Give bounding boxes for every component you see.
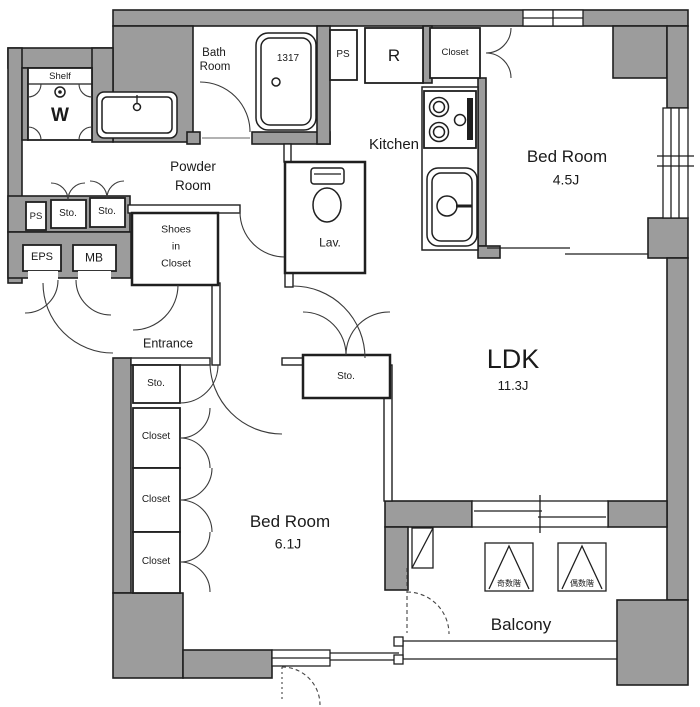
storage-col-door-arc (180, 365, 218, 403)
balcony-partition-panel (412, 528, 433, 568)
closet-col1-label: Closet (142, 432, 170, 443)
refrigerator-label: R (388, 47, 400, 65)
sliding-window-bedroom2-right (330, 653, 399, 660)
storage-mid-doors-arc (303, 312, 390, 355)
balcony-partition-swing-arc (407, 592, 449, 634)
bedroom1-name-label: Bed Room (527, 148, 607, 166)
toilet (311, 168, 344, 222)
window-bedroom2-balcony (272, 650, 330, 666)
washer-label: W (51, 106, 69, 126)
bath-room-label-2: Room (200, 61, 231, 73)
mb-door-arc (76, 280, 111, 315)
bedroom2-size-label: 6.1J (275, 537, 301, 552)
closet-col3-label: Closet (142, 557, 170, 568)
bedroom2-door-arc (210, 362, 282, 434)
storage-small1-label: Sto. (59, 209, 77, 220)
hatch-even-label: 偶数階 (570, 580, 594, 588)
shelf-label: Shelf (49, 72, 71, 82)
storage-mid-label: Sto. (337, 372, 355, 383)
floor-plan-drawing (0, 0, 700, 707)
balcony-label: Balcony (491, 616, 551, 634)
closet-col2-doors-arc (180, 468, 212, 532)
ldk-size-label: 11.3J (498, 379, 529, 393)
floor-plan: Shelf W Bath Room 1317 PS R Closet Bed R… (0, 0, 700, 707)
closet-top-label: Closet (442, 48, 469, 58)
kitchen-sink (427, 168, 477, 246)
pipe-space-top-label: PS (336, 50, 349, 61)
closet-col1-doors-arc (180, 408, 210, 468)
powder-room-label-2: Room (175, 179, 211, 193)
bathtub-size-label: 1317 (277, 54, 299, 65)
mb-door-gap (78, 271, 111, 280)
meter-box-label: MB (85, 252, 103, 265)
bedroom1-size-label: 4.5J (553, 173, 579, 188)
closet-col2-label: Closet (142, 495, 170, 506)
bath-room-label-1: Bath (202, 47, 226, 59)
closet-col3-doors-arc (180, 532, 210, 592)
shoes-closet-label-3: Closet (161, 258, 191, 269)
bedroom2-window-swing-arc (282, 667, 320, 705)
shoes-closet-door-arc (133, 285, 178, 330)
hatch-odd-label: 奇数階 (497, 580, 521, 588)
shoes-closet-label-2: in (172, 241, 180, 252)
entrance-label: Entrance (143, 337, 193, 350)
balcony-railing (403, 641, 617, 659)
window-bedroom1-right (657, 108, 694, 218)
powder-hall-door-arc (240, 212, 285, 257)
shoes-closet-label-1: Shoes (161, 224, 191, 235)
balcony-elements (282, 528, 617, 705)
railing-joint-bottom (394, 655, 403, 664)
eps-label: EPS (31, 252, 53, 264)
vanity-sink (97, 92, 177, 138)
stove (424, 91, 476, 148)
railing-joint-top (394, 637, 403, 646)
sliding-door-bedroom1-ldk (487, 248, 648, 254)
lavatory-label: Lav. (319, 237, 341, 250)
bedroom2-name-label: Bed Room (250, 513, 330, 531)
storage-col-label: Sto. (147, 379, 165, 390)
eps-door-arc (25, 280, 58, 313)
eps-door-gap (28, 271, 58, 280)
bath-door-arc (200, 82, 250, 132)
closet-top-doors-arc (486, 28, 511, 78)
ldk-name-label: LDK (487, 345, 540, 373)
pipe-space-left-label: PS (30, 212, 43, 222)
kitchen-label: Kitchen (369, 137, 419, 153)
storage-small2-label: Sto. (98, 207, 116, 218)
powder-room-label-1: Powder (170, 160, 216, 174)
window-ldk-balcony (472, 495, 608, 533)
hall-ldk-door-arc (293, 286, 365, 358)
window-top (523, 10, 583, 26)
